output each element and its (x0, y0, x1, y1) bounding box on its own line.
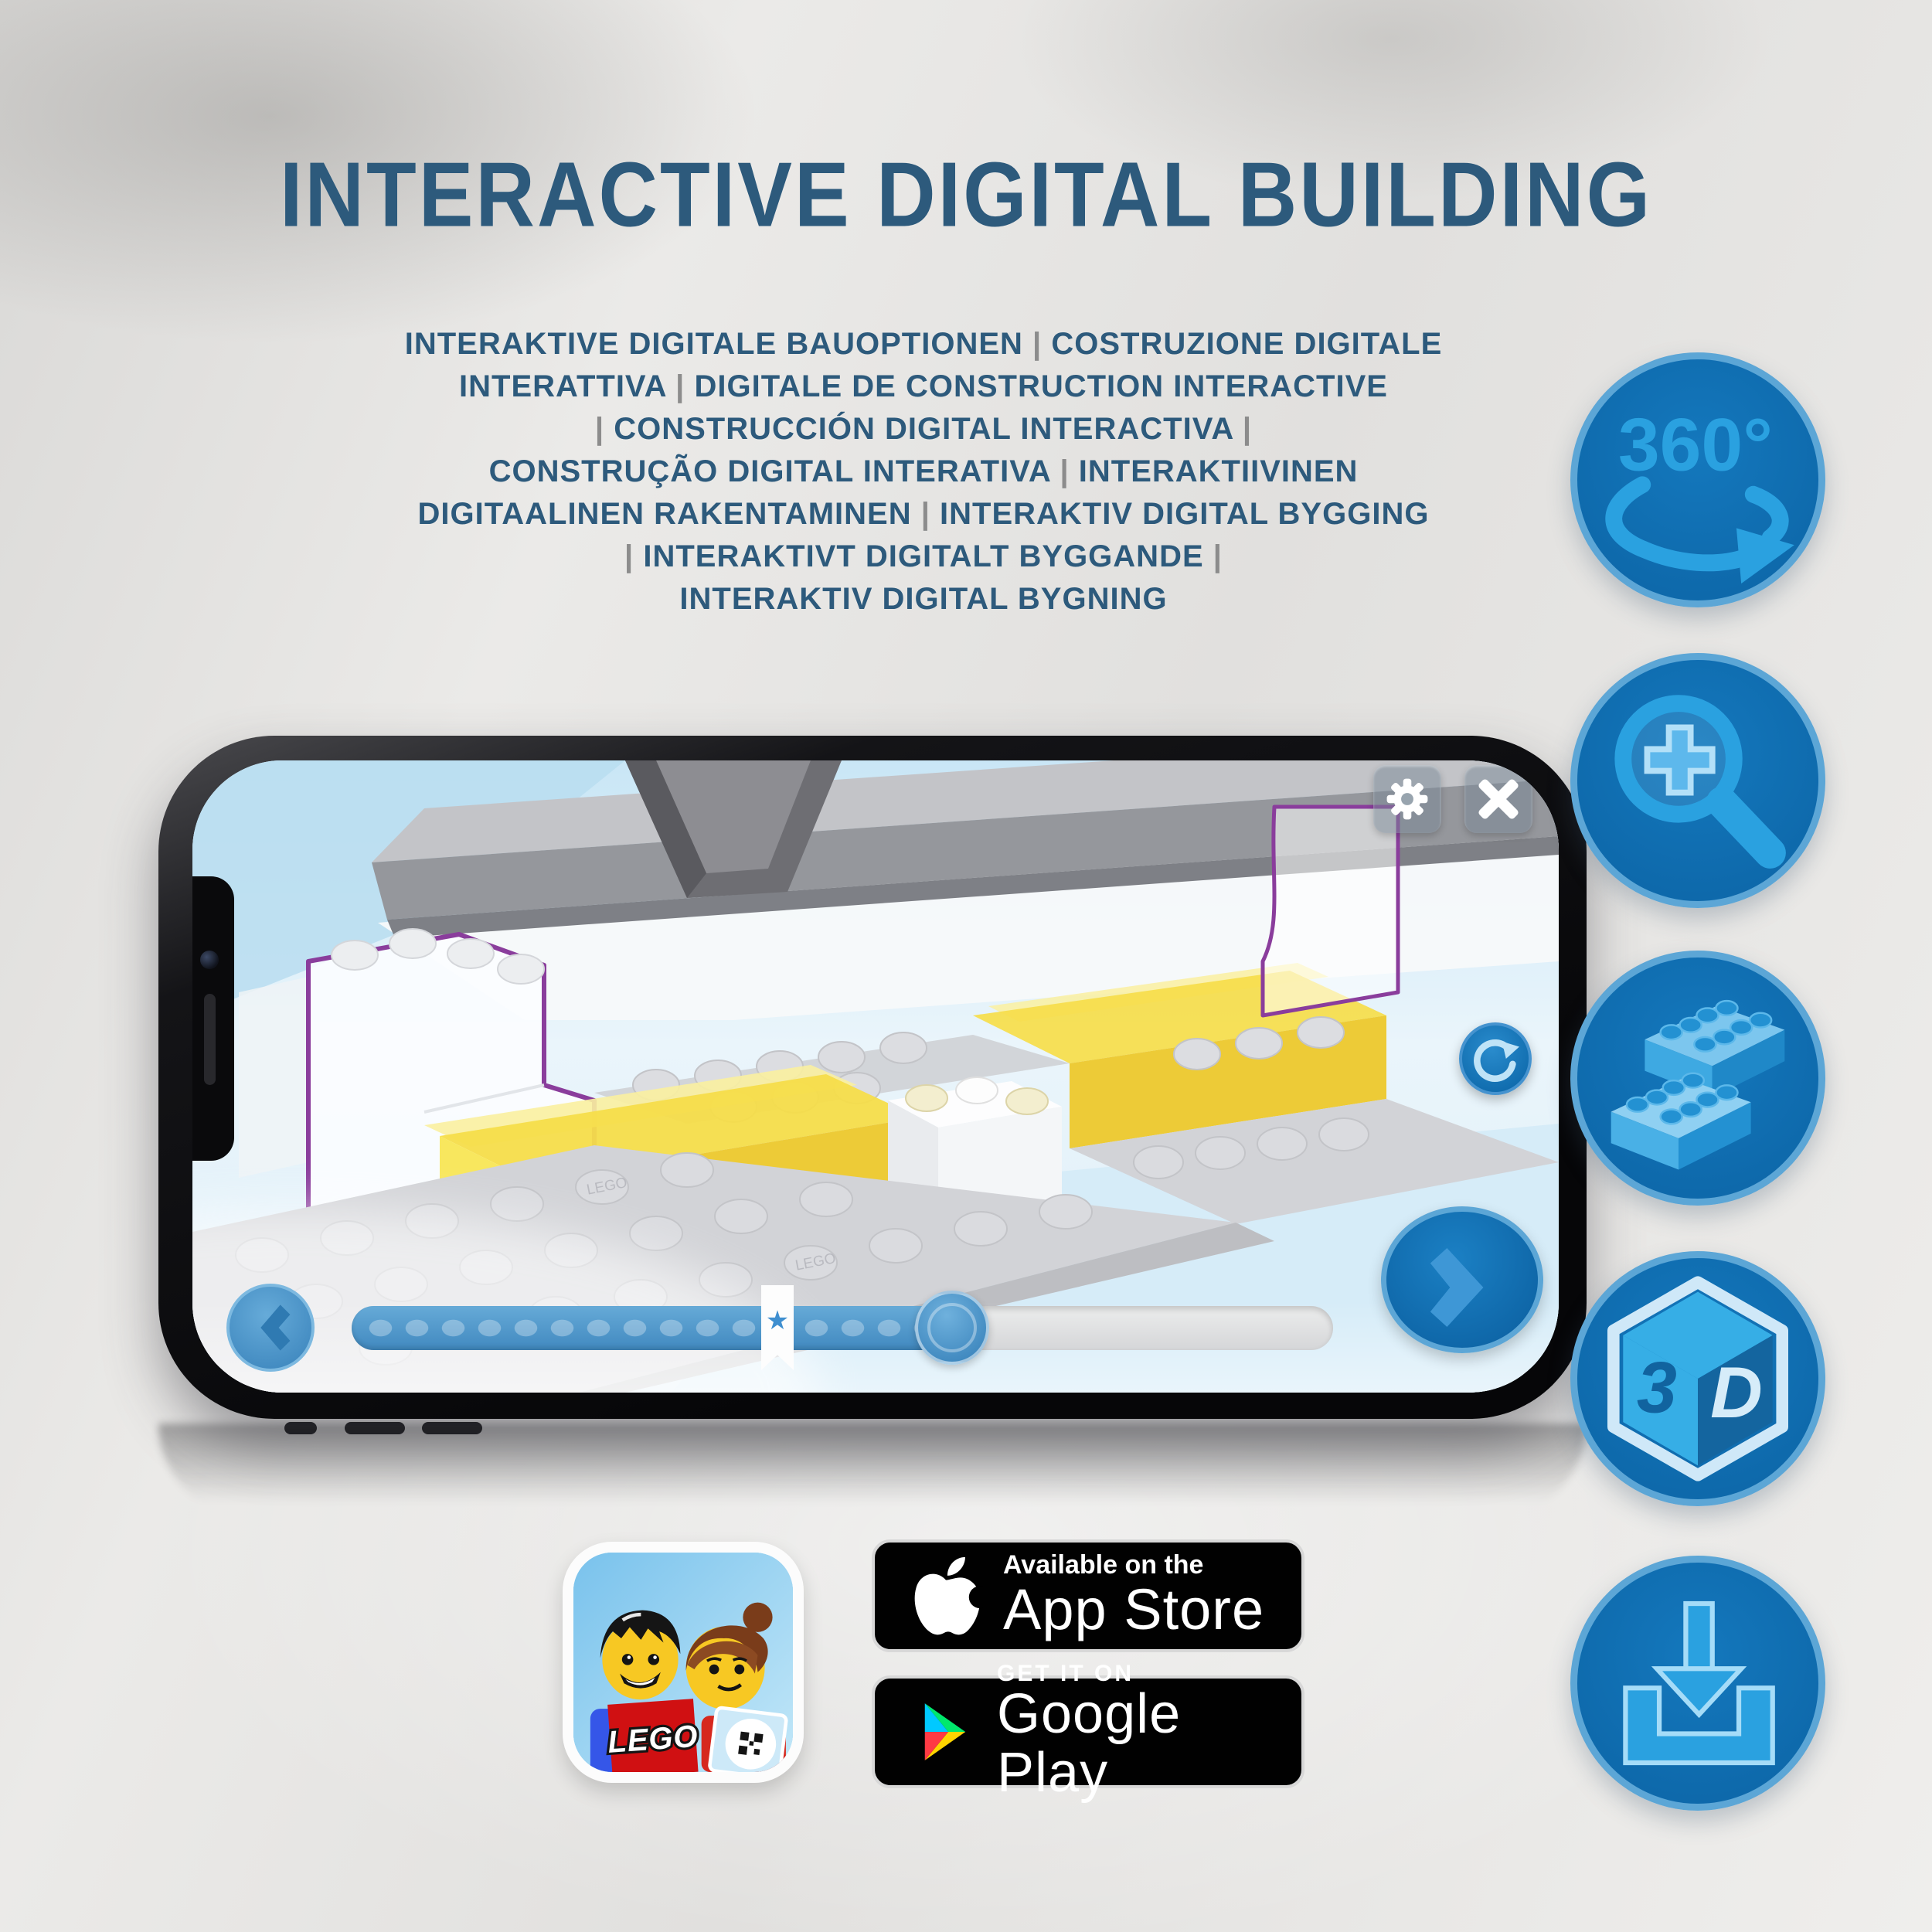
phone-notch (192, 876, 234, 1161)
rotate-view-button[interactable] (1459, 1022, 1532, 1095)
page-title: INTERACTIVE DIGITAL BUILDING (0, 143, 1932, 248)
app-screen: LEGO LEGO (192, 760, 1559, 1393)
front-camera (200, 951, 219, 969)
settings-button[interactable] (1373, 765, 1441, 833)
zoom-in-icon (1577, 660, 1818, 901)
lego-3d-scene: LEGO LEGO (192, 760, 1559, 1393)
app-icon-art: LEGO (573, 1553, 793, 1772)
google-play-icon (913, 1700, 977, 1764)
phone-reflection (158, 1423, 1587, 1516)
360-rotation-icon: 360° (1577, 359, 1818, 600)
previous-step-button[interactable] (226, 1284, 315, 1372)
close-button[interactable] (1464, 765, 1532, 833)
apple-icon (909, 1555, 983, 1637)
3d-cube-icon: 3 D (1577, 1258, 1818, 1499)
chevron-left-icon (230, 1287, 311, 1369)
gear-icon (1373, 765, 1441, 833)
next-step-button[interactable] (1381, 1206, 1543, 1353)
download-icon (1577, 1563, 1818, 1804)
chevron-right-icon (1386, 1212, 1538, 1363)
bookmark-star-icon: ★ (766, 1305, 789, 1336)
feature-zoom (1570, 653, 1825, 908)
slider-handle[interactable] (915, 1291, 989, 1365)
app-store-label: App Store (1003, 1580, 1264, 1640)
slider-fill (352, 1306, 953, 1350)
step-dots (362, 1306, 937, 1350)
earpiece-speaker (204, 994, 216, 1085)
phone-mockup: LEGO LEGO (158, 736, 1587, 1419)
promo-canvas: INTERACTIVE DIGITAL BUILDING INTERAKTIVE… (0, 0, 1932, 1932)
lego-logo-text: LEGO (607, 1719, 699, 1760)
build-progress-slider[interactable]: ★ (352, 1306, 1333, 1350)
360-label: 360° (1618, 403, 1773, 487)
qr-card (709, 1707, 787, 1772)
close-icon (1464, 765, 1532, 833)
phone-volume-button (345, 1422, 405, 1434)
google-play-badge[interactable]: GET IT ON Google Play (872, 1675, 1304, 1788)
feature-download (1570, 1556, 1825, 1811)
google-play-label: Google Play (997, 1685, 1301, 1802)
feature-bricks (1570, 951, 1825, 1206)
feature-3d: 3 D (1570, 1251, 1825, 1506)
phone-volume-button (422, 1422, 482, 1434)
app-store-tagline: Available on the (1003, 1552, 1264, 1580)
app-store-badge[interactable]: Available on the App Store (872, 1539, 1304, 1652)
lego-logo: LEGO (605, 1699, 700, 1772)
3d-left-label: 3 (1637, 1347, 1677, 1428)
feature-360-rotation: 360° (1570, 352, 1825, 607)
rotate-icon (1462, 1026, 1529, 1092)
lego-app-icon[interactable]: LEGO (563, 1542, 804, 1783)
lego-brick-icon (1577, 957, 1818, 1199)
phone-side-button (284, 1422, 317, 1434)
3d-right-label: D (1710, 1352, 1763, 1433)
google-play-tagline: GET IT ON (997, 1662, 1301, 1686)
